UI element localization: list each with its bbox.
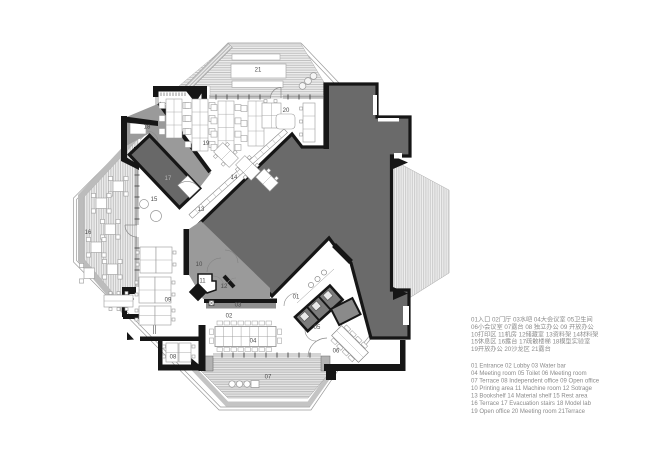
- svg-text:12: 12: [221, 284, 228, 290]
- svg-text:19开放办公 20沙龙区 21露台: 19开放办公 20沙龙区 21露台: [471, 345, 551, 353]
- svg-text:19 Open office 20 Meeting room: 19 Open office 20 Meeting room 21Terrace: [471, 409, 586, 415]
- svg-text:21: 21: [255, 68, 262, 74]
- svg-text:18: 18: [144, 125, 151, 131]
- svg-text:13: 13: [198, 207, 205, 213]
- svg-text:01 Entrance 02 Lobby 03 Water: 01 Entrance 02 Lobby 03 Water bar: [471, 364, 566, 370]
- svg-text:07 Terrace 08 Independent offi: 07 Terrace 08 Independent office 09 Open…: [471, 379, 600, 385]
- svg-text:06小会议室 07露台 08 独立办公 09 开放办公: 06小会议室 07露台 08 独立办公 09 开放办公: [471, 323, 594, 331]
- svg-text:14: 14: [231, 175, 238, 181]
- svg-text:11: 11: [199, 279, 206, 285]
- svg-text:10打印区 11机房 12储藏室 13资料架 14材料架: 10打印区 11机房 12储藏室 13资料架 14材料架: [471, 330, 598, 338]
- svg-text:20: 20: [283, 108, 290, 114]
- svg-text:15休息区 16露台 17疏散楼梯 18模型实验室: 15休息区 16露台 17疏散楼梯 18模型实验室: [471, 338, 590, 346]
- svg-text:13 Bookshelf 14 Material shelf: 13 Bookshelf 14 Material shelf 15 Rest a…: [471, 394, 588, 400]
- svg-text:01入口 02门厅 03水吧 04大会议室 05卫生间: 01入口 02门厅 03水吧 04大会议室 05卫生间: [471, 316, 593, 324]
- svg-text:01: 01: [293, 295, 300, 301]
- svg-text:05: 05: [314, 325, 321, 331]
- svg-text:04 Meeting room 05 Toilet 06 M: 04 Meeting room 05 Toilet 06 Meeting roo…: [471, 371, 587, 377]
- svg-text:19: 19: [203, 141, 210, 147]
- svg-text:07: 07: [265, 375, 272, 381]
- svg-text:06: 06: [333, 349, 340, 355]
- svg-text:02: 02: [226, 314, 233, 320]
- svg-text:08: 08: [170, 355, 177, 361]
- svg-text:15: 15: [151, 197, 158, 203]
- svg-text:10: 10: [196, 262, 203, 268]
- svg-text:09: 09: [165, 298, 172, 304]
- svg-text:17: 17: [165, 176, 172, 182]
- svg-text:16: 16: [85, 230, 92, 236]
- svg-text:16 Terrace 17 Evacuation stair: 16 Terrace 17 Evacuation stairs 18 Model…: [471, 401, 592, 407]
- svg-text:03: 03: [235, 303, 242, 309]
- svg-text:10 Printing area 11 Machine ro: 10 Printing area 11 Machine room 12 Sotr…: [471, 386, 593, 392]
- svg-text:04: 04: [250, 339, 257, 345]
